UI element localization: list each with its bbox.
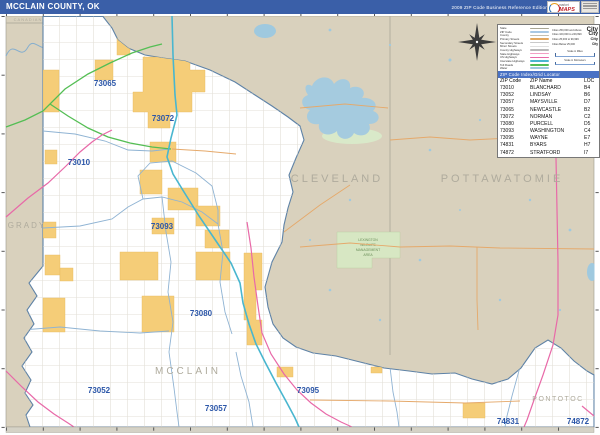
legend: State ZIP Code County Primary Streets Se…: [498, 25, 599, 71]
svg-text:LEXINGTON: LEXINGTON: [358, 238, 378, 242]
line-sample: [530, 67, 549, 69]
brand-edition-box: [581, 1, 599, 13]
table-row: 73095WAYNEE7: [498, 135, 599, 142]
zip-label-73072: 73072: [152, 114, 175, 123]
line-sample: [530, 31, 549, 33]
line-sample: [530, 49, 549, 50]
county-label-grady: GRADY: [8, 221, 46, 230]
legend-city-list: Cities 250,000 and AboveCity Cities 100,…: [549, 27, 598, 72]
zip-label-73080: 73080: [190, 309, 213, 318]
legend-city-row: Cities Below 25,000City: [552, 43, 598, 48]
left-tick-ruler: [0, 16, 6, 432]
table-row: 73057MAYSVILLED7: [498, 99, 599, 106]
zip-label-73093: 73093: [151, 222, 174, 231]
county-label-mcclain: MCCLAIN: [155, 366, 221, 377]
zip-label-73010: 73010: [68, 158, 91, 167]
zip-index-table: ZIP Code ZIP Name LOC 73010BLANCHARDB4 7…: [498, 78, 599, 157]
table-row: 73010BLANCHARDB4: [498, 85, 599, 92]
brand-logo: market MAPS: [547, 1, 599, 13]
legend-line-row: Water: [500, 67, 549, 70]
zip-label-73095: 73095: [297, 386, 320, 395]
zip-label-73057: 73057: [205, 404, 228, 413]
legend-line-list: State ZIP Code County Primary Streets Se…: [500, 27, 549, 72]
table-row: 73065NEWCASTLEB2: [498, 107, 599, 114]
table-row: 73072NORMANC2: [498, 114, 599, 121]
line-sample: [530, 46, 549, 47]
zip-label-74831: 74831: [497, 417, 520, 426]
svg-text:AREA: AREA: [363, 253, 373, 257]
scale-bar-kilometers: Scale in Kilometers: [552, 59, 598, 66]
table-row: 74872STRATFORDI7: [498, 150, 599, 157]
line-sample: [530, 64, 549, 66]
line-sample: [530, 28, 549, 29]
line-sample: [530, 60, 549, 62]
county-label-canadian: CANADIAN: [14, 17, 43, 22]
table-header-row: ZIP Code ZIP Name LOC: [498, 78, 599, 85]
county-label-pottawatomie: POTTAWATOMIE: [441, 173, 564, 185]
bottom-tick-ruler: [6, 427, 594, 433]
zip-label-74872: 74872: [567, 417, 590, 426]
line-sample: [530, 42, 549, 43]
top-tick-ruler: [6, 14, 594, 16]
svg-text:MANAGEMENT: MANAGEMENT: [356, 248, 380, 252]
scale-bar-miles: Scale in Miles: [552, 50, 598, 57]
line-sample: [530, 53, 549, 54]
zip-label-73065: 73065: [94, 79, 117, 88]
brand-logo-mark: market MAPS: [547, 1, 580, 13]
line-sample: [530, 35, 549, 36]
map-page: { "header": { "title": "MCCLAIN COUNTY, …: [0, 0, 600, 435]
page-title: MCCLAIN COUNTY, OK: [6, 2, 100, 11]
table-row: 74831BYARSH7: [498, 142, 599, 149]
zip-index-header: ZIP Code Index/Grid Locator: [498, 71, 599, 78]
legend-index-panel: State ZIP Code County Primary Streets Se…: [497, 24, 600, 158]
line-sample: [530, 57, 549, 58]
brand-label: MAPS: [559, 7, 575, 13]
header-bar: MCCLAIN COUNTY, OK 2009 ZIP Code Busines…: [0, 0, 600, 14]
table-row: 73080PURCELLD5: [498, 121, 599, 128]
table-row: 73052LINDSAYB6: [498, 92, 599, 99]
line-sample: [530, 38, 549, 39]
county-label-pontotoc: PONTOTOC: [532, 396, 583, 403]
county-label-cleveland: CLEVELAND: [291, 173, 383, 185]
compass-rose-icon: [455, 20, 499, 69]
zip-label-73052: 73052: [88, 386, 111, 395]
table-row: 73093WASHINGTONC4: [498, 128, 599, 135]
edition-label: 2009 ZIP Code Business Reference Edition: [451, 5, 548, 10]
